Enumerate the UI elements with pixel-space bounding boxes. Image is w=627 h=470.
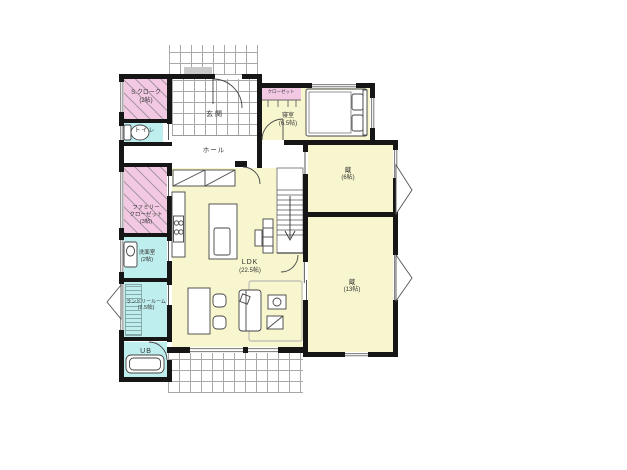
- bay-marker-right-upper: [396, 165, 412, 214]
- porch-step: [184, 67, 212, 75]
- label-shoe-cloak: S.クローク(2帖): [131, 90, 161, 105]
- label-ldk: LDK(22.5帖): [239, 259, 261, 275]
- label-toilet: トイレ: [134, 128, 155, 136]
- bay-marker-left: [107, 285, 121, 319]
- label-bedroom-closet: クローゼット: [268, 89, 295, 95]
- floorplan-canvas: S.クローク(2帖) トイレ 玄関 ホール クローゼット 寝室(6.5帖) 蔵(…: [0, 0, 627, 470]
- terrace-deck: [168, 353, 303, 393]
- entrance-porch: [169, 45, 258, 75]
- label-bedroom: 寝室(6.5帖): [279, 113, 297, 128]
- label-kura-upper: 蔵(6帖): [341, 167, 354, 183]
- entrance-tile-floor: [172, 79, 257, 136]
- label-unit-bath: UB: [140, 348, 152, 357]
- room-ldk: [172, 168, 303, 347]
- label-laundry: ランドリールーム(2.5帖): [126, 299, 166, 312]
- label-kura-lower: 蔵(13帖): [344, 279, 361, 295]
- label-entrance: 玄関: [206, 111, 224, 120]
- label-family-closet: ファミリー クローゼット (3帖): [129, 205, 162, 226]
- bay-marker-right-lower: [396, 255, 412, 301]
- label-hall: ホール: [203, 147, 226, 155]
- label-washroom: 洗面室(2帖): [139, 250, 156, 264]
